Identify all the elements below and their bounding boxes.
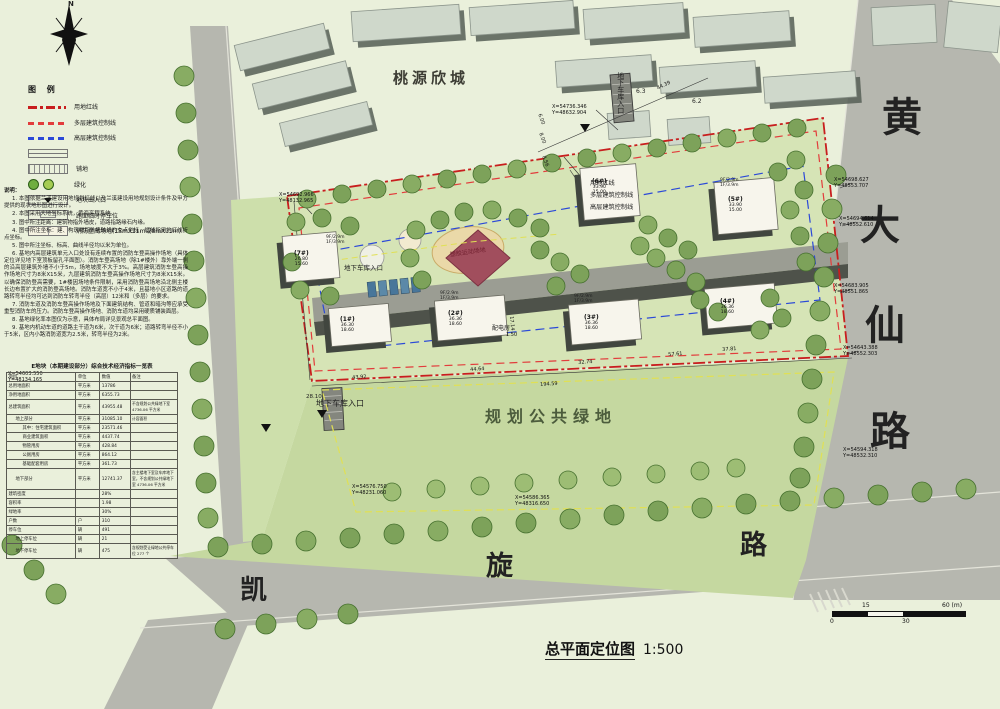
- table-cell: [130, 451, 177, 460]
- tree: [24, 560, 44, 580]
- table-cell: [76, 490, 100, 499]
- tree: [818, 233, 838, 253]
- table-cell: 13786: [100, 382, 130, 391]
- table-cell: 475: [100, 544, 130, 559]
- notes: 说明： 1. 本图依据兰溪建设用地规划红线以及兰溪建设用地规划设计条件及甲方提供…: [4, 188, 188, 341]
- table-header-row: 项目单位数值备注: [7, 373, 178, 382]
- tree: [296, 531, 316, 551]
- table-cell: 含主楼地下室及车库地下室，不含规划公共绿地下室 4736.06 平方米: [130, 469, 177, 490]
- tree: [824, 488, 844, 508]
- tree: [798, 403, 818, 423]
- table-cell: [130, 490, 177, 499]
- tree: [727, 459, 745, 477]
- tree: [806, 335, 826, 355]
- tree: [751, 321, 769, 339]
- table-cell: 平方米: [76, 442, 100, 451]
- table-cell: 其中：住宅建筑面积: [7, 424, 76, 433]
- coordinate-label: X=54692.966Y=48132.965: [279, 192, 314, 204]
- scale-30: 30: [902, 618, 910, 625]
- tree: [256, 614, 276, 634]
- public-green-label: 规划公共绿地: [485, 408, 617, 426]
- tree: [736, 494, 756, 514]
- building-label: (1#)36.3018.60: [340, 316, 355, 333]
- table-cell: [130, 442, 177, 451]
- table-cell: 平方米: [76, 424, 100, 433]
- coordinate-label: X=54694.614Y=48552.610: [839, 216, 874, 228]
- table-row: 总建筑面积平方米43955.48不含规划公共绿地下室 4736.06 平方米: [7, 400, 178, 415]
- tree: [753, 124, 771, 142]
- table-cell: [130, 424, 177, 433]
- tree: [515, 474, 533, 492]
- tree: [691, 462, 709, 480]
- table-cell: 商业建筑面积: [7, 433, 76, 442]
- table-cell: 310: [100, 517, 130, 526]
- tree: [198, 508, 218, 528]
- dash-blue-swatch: [28, 137, 66, 140]
- coordinate-label: X=54683.905Y=48551.865: [834, 283, 869, 295]
- table-cell: 户: [76, 517, 100, 526]
- building-label: (6#)33.9015.00: [592, 178, 607, 195]
- garage-label: 地下车库入口: [616, 72, 624, 114]
- tree: [438, 170, 456, 188]
- table-cell: [130, 499, 177, 508]
- legend-item: [28, 148, 228, 159]
- tree: [341, 217, 359, 235]
- legend-item-label: 用地红线: [74, 102, 98, 111]
- tree: [604, 505, 624, 525]
- building-label: (3#)36.3618.60: [584, 314, 599, 331]
- table-row: 容积率1.98: [7, 499, 178, 508]
- table-cell: 30%: [100, 508, 130, 517]
- floors-label: 9F/2.9m 1F/3.9m: [326, 236, 345, 246]
- dimension-label: 1.50: [506, 332, 517, 338]
- garage-ramp-south: [322, 388, 344, 431]
- table-cell: 地下停车位: [7, 544, 76, 559]
- tree: [188, 325, 208, 345]
- tree: [413, 271, 431, 289]
- garage-label: 地下车库入口: [344, 265, 383, 272]
- building-label: (5#)33.9015.00: [728, 196, 743, 213]
- table-cell: 绿地率: [7, 508, 76, 517]
- tree: [679, 241, 697, 259]
- table-row: 停车位辆491: [7, 526, 178, 535]
- scale-0: 0: [830, 618, 834, 625]
- garage-label: 地下车库入口: [316, 400, 364, 409]
- note-item: 2. 本图采用大地坐标系统，黄海高程系统。: [4, 211, 188, 218]
- tree: [186, 288, 206, 308]
- table-cell: 停车位: [7, 526, 76, 535]
- table-cell: 总建筑面积: [7, 400, 76, 415]
- tree: [797, 253, 815, 271]
- table-header: 单位: [76, 373, 100, 382]
- legend-item: 铺地: [28, 163, 228, 174]
- dimension-label: 44.64: [470, 366, 485, 373]
- tree: [321, 287, 339, 305]
- tree: [647, 465, 665, 483]
- table-cell: 21: [100, 535, 130, 544]
- table-cell: 864.12: [100, 451, 130, 460]
- ctrl-high-label: 高层建筑控制线: [590, 205, 633, 212]
- n62-label: 6.2: [692, 99, 702, 106]
- table-cell: [130, 433, 177, 442]
- legend-item-label: 多层建筑控制线: [74, 118, 116, 127]
- note-item: 7. 消防车道及消防车登高操作场地及下面建筑结构、管道和暗沟等应承受重型消防车的…: [4, 302, 188, 316]
- tree: [190, 362, 210, 382]
- tree: [428, 521, 448, 541]
- table-row: 商业建筑面积平方米4437.74: [7, 433, 178, 442]
- building-(1#): [328, 303, 391, 346]
- kai-label: 凯: [240, 576, 267, 606]
- hatch-swatch: [28, 164, 68, 174]
- tree: [192, 399, 212, 419]
- floors-label: 9F/2.9m 1F/3.9m: [720, 179, 739, 189]
- table-cell: 平方米: [76, 460, 100, 469]
- tree: [473, 165, 491, 183]
- tree: [472, 517, 492, 537]
- table-cell: [130, 535, 177, 544]
- table-cell: 平方米: [76, 415, 100, 424]
- tree: [788, 119, 806, 137]
- tree: [338, 604, 358, 624]
- tree: [559, 471, 577, 489]
- table-cell: [130, 460, 177, 469]
- tree: [252, 534, 272, 554]
- note-item: 6. 基地内高层建筑单元入口处设有连续布置的消防车登高操作场地（具体定位详见地下…: [4, 251, 188, 301]
- drawing-title-text: 总平面定位图: [545, 640, 635, 660]
- tree: [773, 309, 791, 327]
- table-cell: 建筑密度: [7, 490, 76, 499]
- table-row: 净用地面积平方米6355.73: [7, 391, 178, 400]
- note-item: 8. 基地绿化率本图仅为示意，具体布局详见景观总平面图。: [4, 317, 188, 324]
- tree: [810, 301, 830, 321]
- box-line-swatch: [28, 149, 68, 158]
- tree: [613, 144, 631, 162]
- tree: [208, 537, 228, 557]
- dimension-label: 17.14: [508, 316, 515, 331]
- tree: [174, 66, 194, 86]
- tree: [508, 160, 526, 178]
- tree: [551, 253, 569, 271]
- n63-label: 6.3: [636, 89, 646, 96]
- tree: [603, 468, 621, 486]
- legend-item: 高层建筑控制线: [28, 132, 228, 143]
- table-row: 物管用房平方米428.84: [7, 442, 178, 451]
- tree: [647, 249, 665, 267]
- table-cell: 地上停车位: [7, 535, 76, 544]
- table-cell: 平方米: [76, 451, 100, 460]
- table-cell: 辆: [76, 535, 100, 544]
- table-cell: 6355.73: [100, 391, 130, 400]
- tree: [333, 185, 351, 203]
- tree: [718, 129, 736, 147]
- table-row: 地上部分平方米31085.10计容面积: [7, 415, 178, 424]
- tree: [483, 201, 501, 219]
- lu-label: 路: [740, 531, 767, 561]
- tree: [560, 509, 580, 529]
- tree: [313, 209, 331, 227]
- legend-title: 图 例: [28, 84, 228, 95]
- tree: [868, 485, 888, 505]
- table-cell: [130, 526, 177, 535]
- table-header: 备注: [130, 373, 177, 382]
- table-row: 地上停车位辆21: [7, 535, 178, 544]
- scale-60: 60 (m): [942, 602, 962, 609]
- tree: [761, 289, 779, 307]
- floors-label: 9F/2.9m 1F/3.9m: [574, 295, 593, 305]
- tree: [194, 436, 214, 456]
- table-header: 数值: [100, 373, 130, 382]
- table-row: 建筑密度28%: [7, 490, 178, 499]
- table-row: 公厕用房平方米864.12: [7, 451, 178, 460]
- tree: [215, 619, 235, 639]
- table-cell: 物管用房: [7, 442, 76, 451]
- tree: [384, 524, 404, 544]
- table-row: 地下停车位辆475含规划受让绿地公共停车位 277 个: [7, 544, 178, 559]
- table-cell: 不含规划公共绿地下室 4736.06 平方米: [130, 400, 177, 415]
- table-cell: 地下部分: [7, 469, 76, 490]
- table-header: 项目: [7, 373, 76, 382]
- tree: [794, 437, 814, 457]
- coordinate-label: X=54643.388Y=48552.303: [843, 345, 878, 357]
- tree: [639, 216, 657, 234]
- tree: [403, 175, 421, 193]
- notes-title: 说明：: [4, 188, 188, 195]
- coordinate-label: X=54586.365Y=48316.650: [515, 495, 550, 507]
- table-cell: 平方米: [76, 382, 100, 391]
- dashdot-red-swatch: [28, 106, 66, 109]
- table-row: 户数户310: [7, 517, 178, 526]
- table-cell: 428.84: [100, 442, 130, 451]
- table-cell: 地上部分: [7, 415, 76, 424]
- tree: [631, 237, 649, 255]
- table-row: 总用地面积平方米13786: [7, 382, 178, 391]
- huang-label: 黄: [882, 96, 922, 140]
- coordinate-label: X=54736.346Y=48632.904: [552, 104, 587, 116]
- tree: [455, 203, 473, 221]
- indicator-table: E地块（本期建设部分）综合技术经济指标一览表 项目单位数值备注总用地面积平方米1…: [6, 362, 178, 559]
- note-item: 5. 图中所注坐标、标高、曲线半径均以米为单位。: [4, 243, 188, 250]
- tree: [297, 609, 317, 629]
- tree: [516, 513, 536, 533]
- table-cell: [130, 508, 177, 517]
- table-cell: [130, 382, 177, 391]
- table-cell: 4437.74: [100, 433, 130, 442]
- table-row: 其中：住宅建筑面积平方米23571.46: [7, 424, 178, 433]
- tree: [340, 528, 360, 548]
- tree: [368, 180, 386, 198]
- table-cell: 平方米: [76, 433, 100, 442]
- tree: [648, 139, 666, 157]
- table-cell: 361.73: [100, 460, 130, 469]
- table-row: 绿地率30%: [7, 508, 178, 517]
- building-label: (4#)36.3618.60: [720, 298, 735, 315]
- tree: [46, 584, 66, 604]
- table-cell: 43955.48: [100, 400, 130, 415]
- north-compass: N: [44, 2, 94, 74]
- table-cell: [76, 499, 100, 508]
- tree: [795, 181, 813, 199]
- tree: [291, 281, 309, 299]
- tree: [814, 267, 834, 287]
- legend-item: 用地红线: [28, 101, 228, 112]
- coordinate-label: X=54594.318Y=48532.310: [843, 447, 878, 459]
- tree: [407, 221, 425, 239]
- tree: [791, 227, 809, 245]
- table-cell: 1.98: [100, 499, 130, 508]
- tree: [547, 277, 565, 295]
- tree: [648, 501, 668, 521]
- building-label: (2#)36.3618.60: [448, 310, 463, 327]
- dimension-label: 32.74: [578, 359, 593, 366]
- legend-item-label: 铺地: [76, 164, 88, 173]
- table-cell: [76, 508, 100, 517]
- tree: [790, 468, 810, 488]
- tree: [787, 151, 805, 169]
- table-cell: 31085.10: [100, 415, 130, 424]
- table-cell: 计容面积: [130, 415, 177, 424]
- tree: [691, 291, 709, 309]
- tree: [401, 249, 419, 267]
- taoyuan-label: 桃源欣城: [393, 70, 469, 87]
- building-label: (7#)26.8015.60: [294, 250, 309, 267]
- scale-15: 15: [862, 602, 870, 609]
- table-cell: 28%: [100, 490, 130, 499]
- table-cell: 23571.46: [100, 424, 130, 433]
- coordinate-label: X=54576.750Y=48231.060: [352, 484, 387, 496]
- note-item: 3. 图中所注距离：建筑物指外墙皮，道路指路缘石内缘。: [4, 220, 188, 227]
- note-item: 4. 图中所注坐标：建、构筑物指外墙轴线的交点坐标，红线指用地红线折点坐标。: [4, 228, 188, 242]
- table-cell: 辆: [76, 544, 100, 559]
- table-cell: 公厕用房: [7, 451, 76, 460]
- tree: [780, 491, 800, 511]
- tree: [287, 213, 305, 231]
- legend-item-label: 高层建筑控制线: [74, 133, 116, 142]
- coordinate-label: X=54698.627Y=48553.707: [834, 177, 869, 189]
- table-cell: 总用地面积: [7, 382, 76, 391]
- xuan-label: 旋: [486, 552, 513, 582]
- tree: [531, 241, 549, 259]
- tree: [683, 134, 701, 152]
- dash-red-swatch: [28, 122, 66, 125]
- tree: [692, 498, 712, 518]
- table-cell: 净用地面积: [7, 391, 76, 400]
- table-row: 地下部分平方米12741.37含主楼地下室及车库地下室，不含规划公共绿地下室 4…: [7, 469, 178, 490]
- tree: [687, 273, 705, 291]
- tree: [578, 149, 596, 167]
- table-cell: [130, 517, 177, 526]
- tree: [667, 261, 685, 279]
- tree: [196, 473, 216, 493]
- drawing-title: 总平面定位图1:500: [545, 638, 683, 659]
- table-title: E地块（本期建设部分）综合技术经济指标一览表: [6, 362, 178, 370]
- tree: [781, 201, 799, 219]
- dimension-label: 57.61: [668, 351, 683, 358]
- tree: [802, 369, 822, 389]
- legend-item: 多层建筑控制线: [28, 117, 228, 128]
- building-(3#): [568, 299, 641, 345]
- table-cell: 平方米: [76, 391, 100, 400]
- drawing-scale: 1:500: [643, 642, 683, 658]
- tree: [427, 480, 445, 498]
- table-cell: 容积率: [7, 499, 76, 508]
- table-cell: 含规划受让绿地公共停车位 277 个: [130, 544, 177, 559]
- table-cell: 平方米: [76, 400, 100, 415]
- tree: [571, 265, 589, 283]
- table-cell: 基础配套用房: [7, 460, 76, 469]
- xian-label: 仙: [865, 304, 905, 348]
- elev-label: 28.10: [306, 394, 322, 400]
- dimension-label: 37.81: [722, 346, 737, 353]
- building-(2#): [434, 295, 507, 341]
- table-cell: [130, 391, 177, 400]
- tree: [509, 209, 527, 227]
- site-plan-sheet: N 图 例 用地红线多层建筑控制线高层建筑控制线铺地绿化地块出入口路面临时停车位…: [0, 0, 1000, 709]
- tree: [431, 211, 449, 229]
- scale-bar-graphic: [832, 611, 966, 617]
- table-cell: 辆: [76, 526, 100, 535]
- table-cell: 平方米: [76, 469, 100, 490]
- table-cell: 12741.37: [100, 469, 130, 490]
- table-cell: 491: [100, 526, 130, 535]
- dimension-label: 194.59: [540, 381, 558, 388]
- tree: [769, 163, 787, 181]
- table-row: 基础配套用房平方米361.73: [7, 460, 178, 469]
- tree: [471, 477, 489, 495]
- tree: [956, 479, 976, 499]
- dimension-label: 43.92: [352, 374, 367, 381]
- tree: [531, 219, 549, 237]
- tree: [659, 229, 677, 247]
- note-item: 9. 基地内机动车道的道路主干道为6米，次干道为6米；道路转弯半径不小于5米，区…: [4, 325, 188, 339]
- tree: [912, 482, 932, 502]
- note-item: 1. 本图依据兰溪建设用地规划红线以及兰溪建设用地规划设计条件及甲方提供的现状地…: [4, 196, 188, 210]
- north-label: N: [68, 0, 74, 8]
- floors-label: 9F/2.9m 1F/3.9m: [440, 292, 459, 302]
- table-cell: 户数: [7, 517, 76, 526]
